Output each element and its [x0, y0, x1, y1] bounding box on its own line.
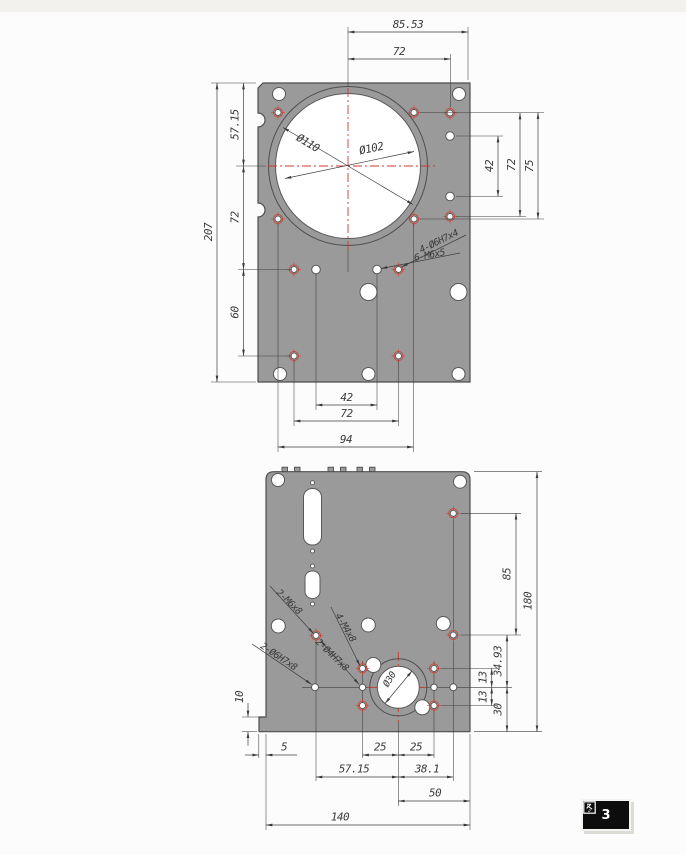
dim-5715-bottom: 57.15 — [339, 763, 370, 776]
db25-connector-cutout — [304, 481, 322, 553]
dim-94-bottom: 94 — [340, 433, 352, 446]
tu-character-icon — [583, 801, 596, 814]
dim-8553: 85.53 — [393, 18, 424, 31]
dim-72-top: 72 — [393, 45, 406, 58]
dim-60-left: 60 — [229, 306, 242, 319]
dim-72-right: 72 — [505, 158, 518, 171]
dim-75-right: 75 — [523, 160, 536, 172]
dim-42-bottom: 42 — [340, 391, 353, 404]
dim-42-right: 42 — [483, 159, 496, 172]
dim-3493: 34.93 — [492, 646, 505, 678]
dim-10: 10 — [233, 690, 246, 703]
dim-207: 207 — [202, 222, 215, 241]
dim-180: 180 — [522, 591, 535, 610]
dim-381: 38.1 — [414, 763, 440, 776]
dim-85: 85 — [501, 568, 514, 580]
figure-number: 3 — [601, 808, 610, 823]
side-view: 2-M6x8 4-M4x8 2-Ø6H7x8 2-Ø4H7x8 Ø30 180 … — [233, 467, 542, 830]
dim-72-left: 72 — [229, 211, 242, 224]
dim-13-lower: 13 — [477, 691, 490, 703]
dim-72-bottom: 72 — [340, 407, 353, 420]
figure-tag: 3 — [581, 799, 631, 831]
dim-13-upper: 13 — [477, 671, 490, 683]
dim-5: 5 — [281, 741, 287, 754]
cad-drawing-page: Ø110 Ø102 85.53 72 207 57.15 72 60 42 72… — [0, 0, 686, 855]
dim-30: 30 — [492, 703, 505, 717]
dim-50: 50 — [429, 787, 442, 800]
dim-25-left: 25 — [374, 741, 386, 754]
dim-25-right: 25 — [410, 741, 422, 754]
dim-140: 140 — [331, 811, 350, 824]
front-view: Ø110 Ø102 85.53 72 207 57.15 72 60 42 72… — [202, 18, 544, 452]
engineering-drawing: Ø110 Ø102 85.53 72 207 57.15 72 60 42 72… — [0, 0, 686, 855]
dim-5715-left: 57.15 — [229, 109, 242, 140]
